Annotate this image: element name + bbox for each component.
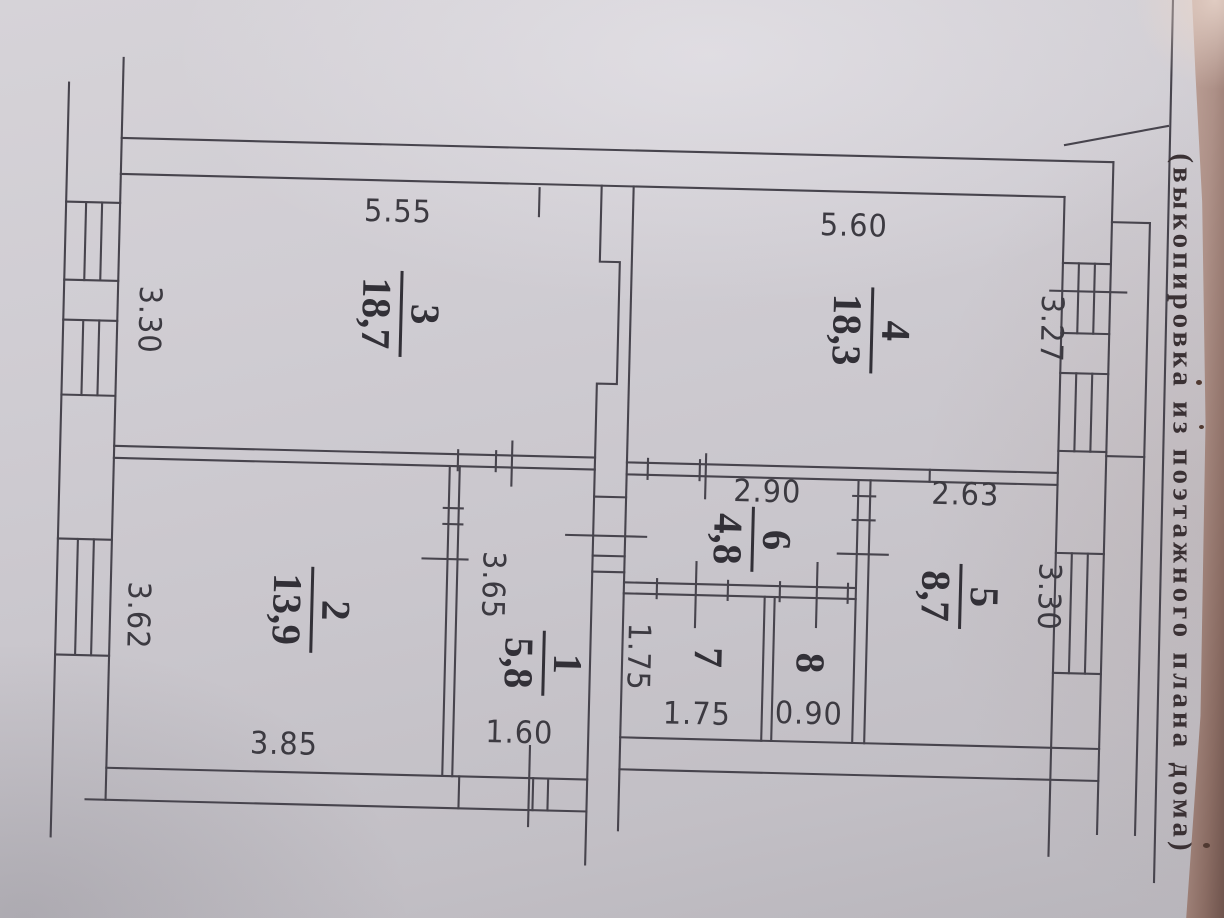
plan-text-layer: 5.55 3.30 5.60 3.27 3.62 3.85 3.65 1.60 …: [0, 0, 1224, 918]
dim-room5-depth: 3.30: [1030, 562, 1068, 631]
dim-room1-depth: 3.65: [474, 551, 512, 620]
room-3-label: 3 18,7: [353, 270, 447, 358]
photographed-floor-plan: 5.55 3.30 5.60 3.27 3.62 3.85 3.65 1.60 …: [0, 0, 1224, 918]
dim-room4-depth: 3.27: [1033, 294, 1071, 363]
room-1-area: 5,8: [496, 630, 546, 696]
room-4-label: 4 18,3: [824, 286, 918, 374]
room-6-number: 6: [754, 525, 799, 555]
dim-room8-width: 0.90: [774, 695, 843, 733]
dim-room3-width: 5.55: [364, 193, 433, 231]
dim-room6-width: 2.90: [733, 473, 802, 511]
paper-speck: [1196, 380, 1202, 385]
room-3-area: 18,7: [353, 270, 403, 357]
room-1-number: 1: [545, 649, 590, 679]
room-7-number: 7: [686, 647, 730, 669]
room-2-label: 2 13,9: [264, 566, 358, 654]
room-2-area: 13,9: [264, 566, 314, 653]
room-1-label: 1 5,8: [496, 630, 590, 697]
dim-room5-width: 2.63: [931, 476, 1000, 514]
dim-room7-depth: 1.75: [619, 622, 657, 691]
room-6-label: 6 4,8: [705, 506, 799, 573]
dim-room4-width: 5.60: [819, 207, 888, 245]
room-4-area: 18,3: [824, 286, 874, 373]
dim-room7-width: 1.75: [662, 695, 731, 733]
room-3-number: 3: [402, 300, 447, 330]
room-5-area: 8,7: [913, 563, 963, 629]
paper-speck: [1199, 425, 1204, 429]
room-5-label: 5 8,7: [913, 563, 1007, 630]
room-8-number: 8: [788, 652, 832, 674]
room-6-area: 4,8: [705, 506, 755, 572]
room-7-label: 7: [686, 647, 730, 669]
dim-room2-width: 3.85: [250, 725, 319, 763]
paper-speck: [1203, 843, 1210, 848]
room-2-number: 2: [313, 595, 358, 625]
room-8-label: 8: [788, 652, 832, 674]
page-edge-highlight: [1134, 0, 1224, 90]
dim-room3-depth: 3.30: [130, 285, 168, 354]
dim-room2-depth: 3.62: [119, 581, 157, 650]
room-4-number: 4: [873, 316, 918, 346]
room-5-number: 5: [961, 582, 1006, 612]
dim-room1-width: 1.60: [485, 714, 554, 752]
side-caption: (выкопировка из поэтажного плана дома): [1166, 153, 1199, 854]
